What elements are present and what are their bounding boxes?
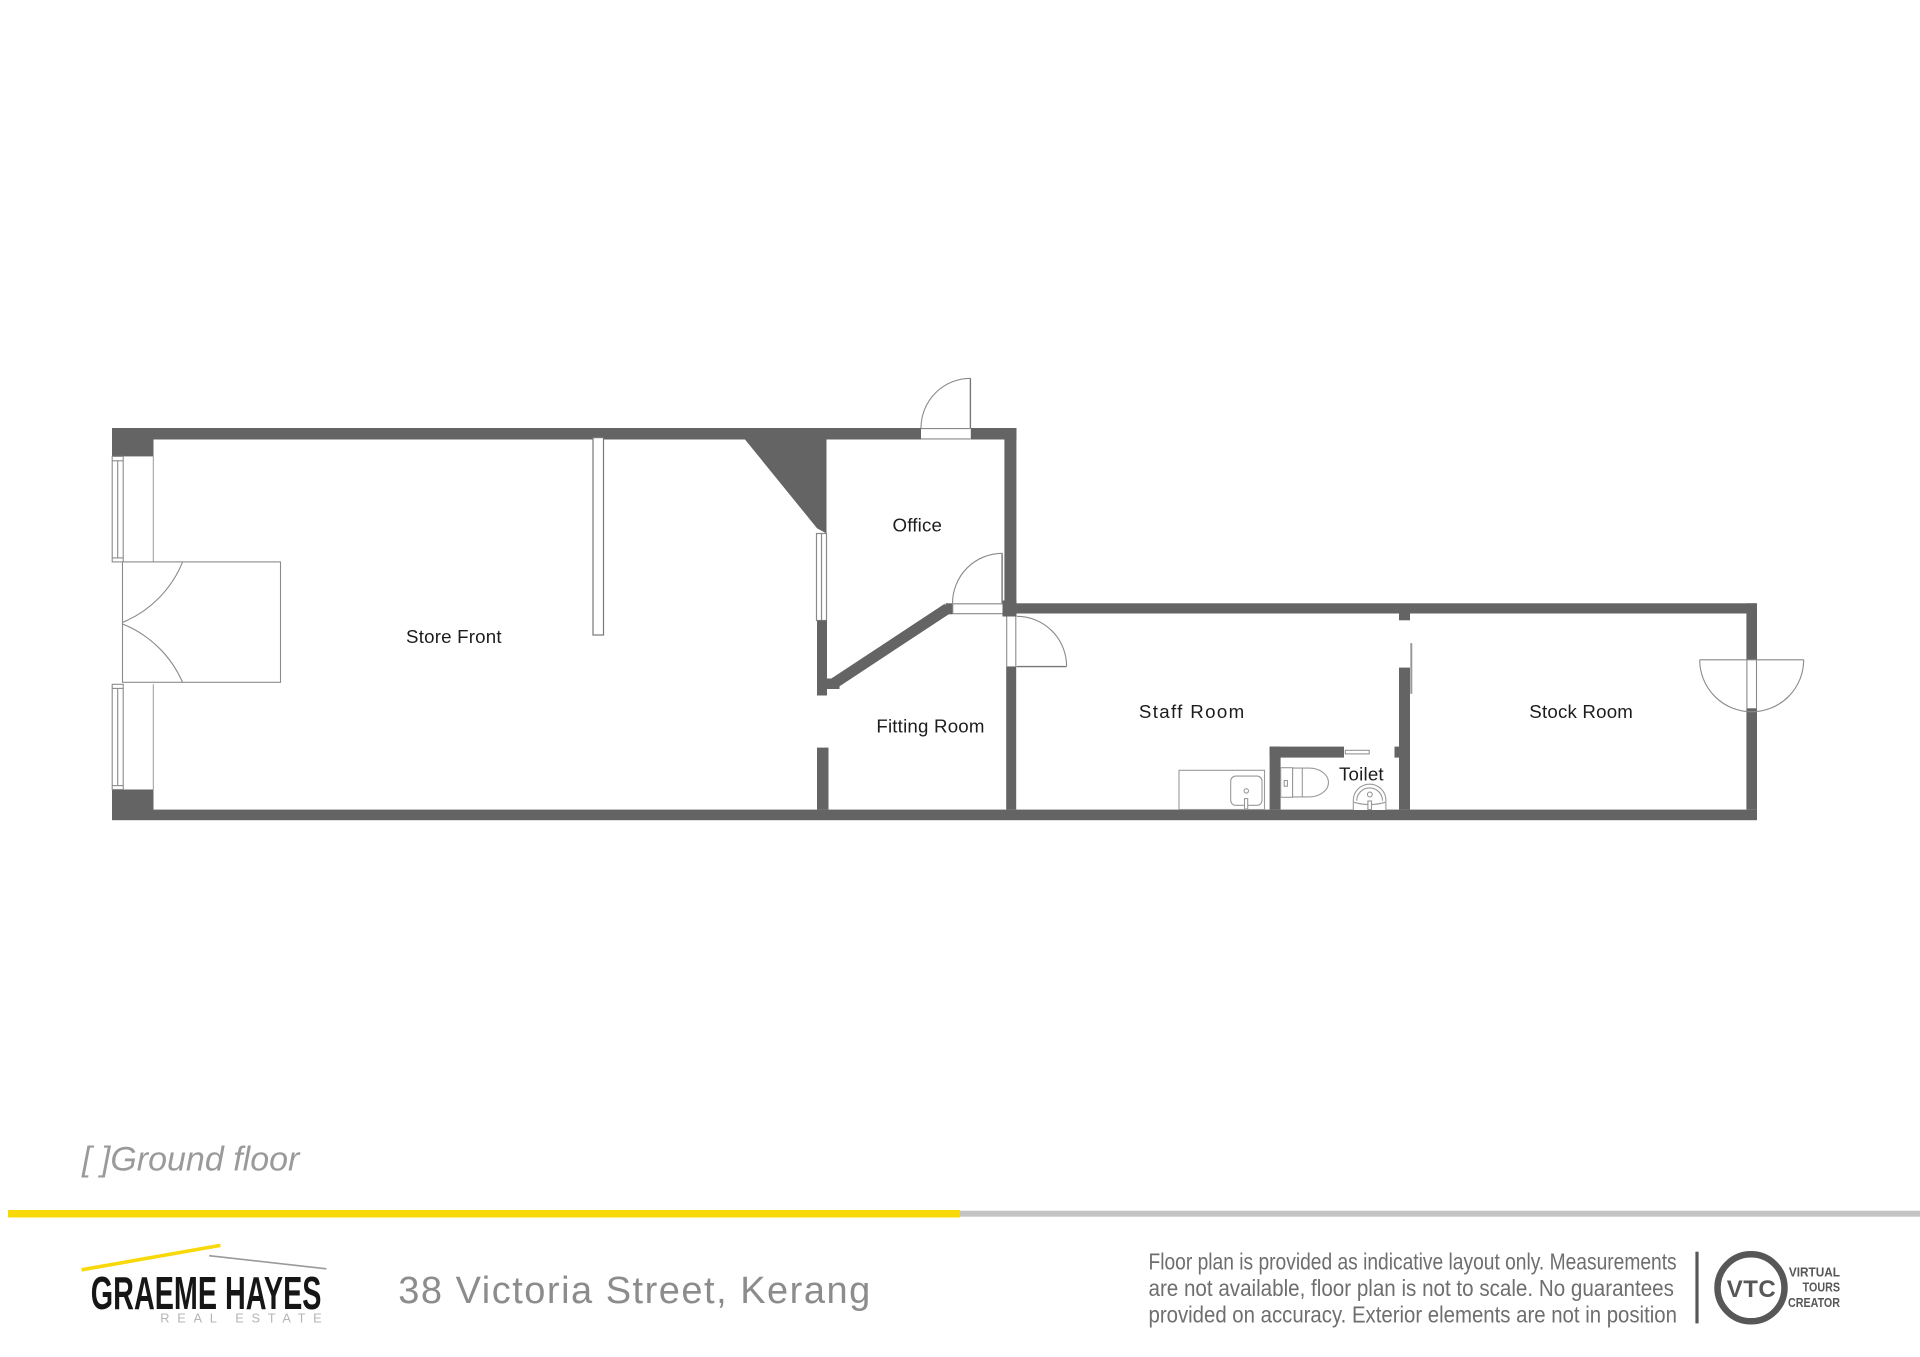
svg-text:[ ]Ground floor: [ ]Ground floor bbox=[81, 1140, 301, 1178]
svg-text:Fitting Room: Fitting Room bbox=[876, 716, 984, 737]
svg-text:Office: Office bbox=[892, 514, 942, 535]
svg-text:Floor plan is provided as indi: Floor plan is provided as indicative lay… bbox=[1149, 1249, 1677, 1275]
svg-text:38 Victoria Street, Kerang: 38 Victoria Street, Kerang bbox=[398, 1270, 871, 1312]
svg-text:Toilet: Toilet bbox=[1339, 763, 1384, 784]
svg-text:provided on accuracy. Exterior: provided on accuracy. Exterior elements … bbox=[1149, 1301, 1677, 1328]
svg-text:VIRTUAL: VIRTUAL bbox=[1789, 1265, 1841, 1280]
svg-text:REAL ESTATE: REAL ESTATE bbox=[160, 1311, 329, 1326]
svg-text:Store Front: Store Front bbox=[406, 626, 502, 647]
svg-text:are not available, floor plan: are not available, floor plan is not to … bbox=[1149, 1275, 1674, 1301]
svg-text:TOURS: TOURS bbox=[1803, 1279, 1840, 1294]
svg-text:VTC: VTC bbox=[1727, 1276, 1777, 1303]
svg-text:CREATOR: CREATOR bbox=[1788, 1295, 1840, 1310]
svg-text:Staff Room: Staff Room bbox=[1139, 701, 1246, 722]
svg-text:Stock Room: Stock Room bbox=[1529, 701, 1633, 722]
